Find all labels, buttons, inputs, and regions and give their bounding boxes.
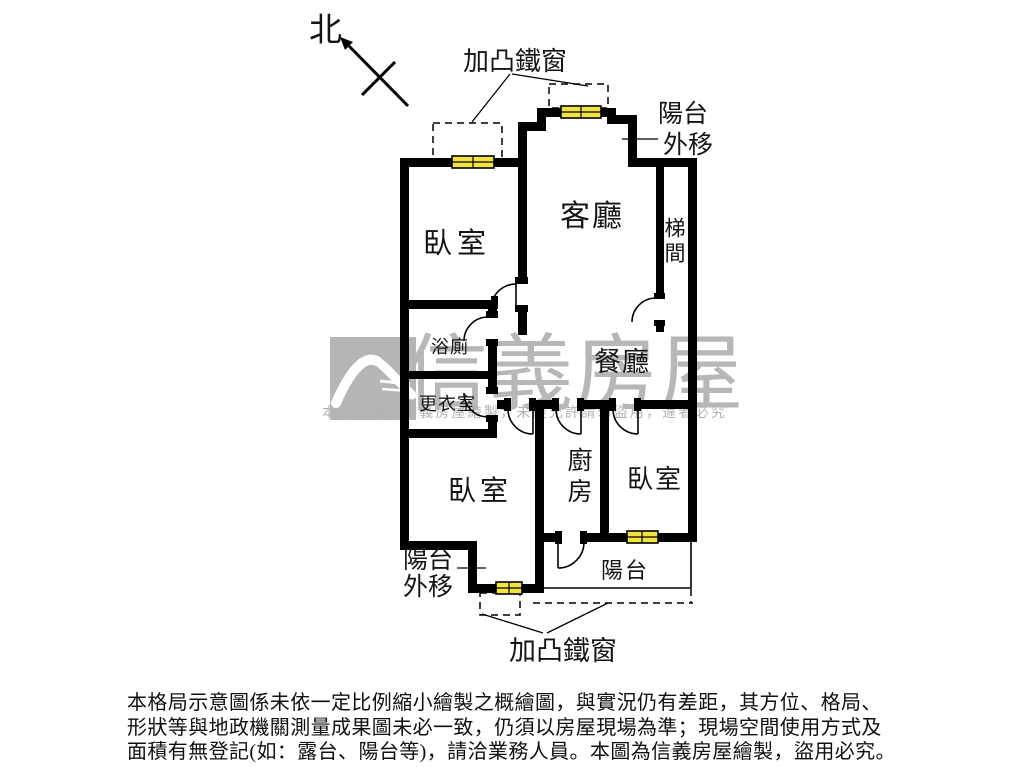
room-label-balcony: 陽台	[601, 553, 649, 585]
balcony-shift-bottom-label: 陽台外移	[403, 547, 453, 601]
floor-plan-page: 信義房屋 本格局圖為信義房屋繪製，未經允許請勿盜用，違者必究	[0, 0, 1024, 768]
door-arc	[613, 409, 638, 434]
window-icon	[627, 531, 658, 543]
window-icon	[496, 582, 522, 594]
iron-window-box	[433, 123, 502, 160]
door-arc	[632, 298, 656, 322]
disclaimer-line-3: 面積有無登記(如：露台、陽台等)，請洽業務人員。本圖為信義房屋繪製，盜用必究。	[127, 740, 896, 765]
room-label-dining-room: 餐廳	[594, 340, 650, 379]
iron-window-top-label: 加凸鐵窗	[463, 41, 567, 78]
room-label-dressing-room: 更衣室	[419, 390, 476, 416]
north-arrow-icon	[340, 37, 408, 106]
balcony-shift-top-line2: 外移	[658, 130, 713, 161]
window-icon	[561, 106, 601, 118]
balcony-shift-top-line1: 陽台	[658, 99, 713, 130]
balcony-shift-bottom-line1: 陽台	[403, 547, 453, 574]
iron-window-box	[549, 84, 608, 108]
disclaimer-text: 本格局示意圖係未依一定比例縮小繪製之概繪圖，與實況仍有差距，其方位、格局、 形狀…	[127, 691, 896, 765]
room-label-kitchen: 廚房	[559, 447, 595, 509]
disclaimer-line-2: 形狀等與地政機關測量成果圖未必一致，仍須以房屋現場為準；現場空間使用方式及	[127, 716, 896, 741]
room-label-bedroom-bottom-left: 臥室	[448, 469, 512, 509]
door-arc	[556, 409, 581, 434]
door-arc	[558, 542, 584, 568]
window-icon	[452, 156, 494, 168]
iron-window-box	[480, 593, 520, 615]
disclaimer-line-1: 本格局示意圖係未依一定比例縮小繪製之概繪圖，與實況仍有差距，其方位、格局、	[127, 691, 896, 716]
door-arc	[508, 409, 533, 434]
room-label-bathroom: 浴廁	[431, 333, 469, 359]
iron-window-bottom-label: 加凸鐵窗	[509, 629, 617, 668]
north-label: 北	[309, 3, 342, 51]
balcony-shift-bottom-line2: 外移	[403, 574, 453, 601]
room-label-bedroom-bottom-right: 臥室	[627, 459, 683, 496]
room-label-stairwell: 梯間	[659, 217, 689, 267]
room-label-bedroom-top-left: 臥室	[423, 220, 491, 262]
balcony-shift-top-label: 陽台外移	[658, 99, 713, 161]
room-label-living-room: 客廳	[560, 191, 624, 235]
